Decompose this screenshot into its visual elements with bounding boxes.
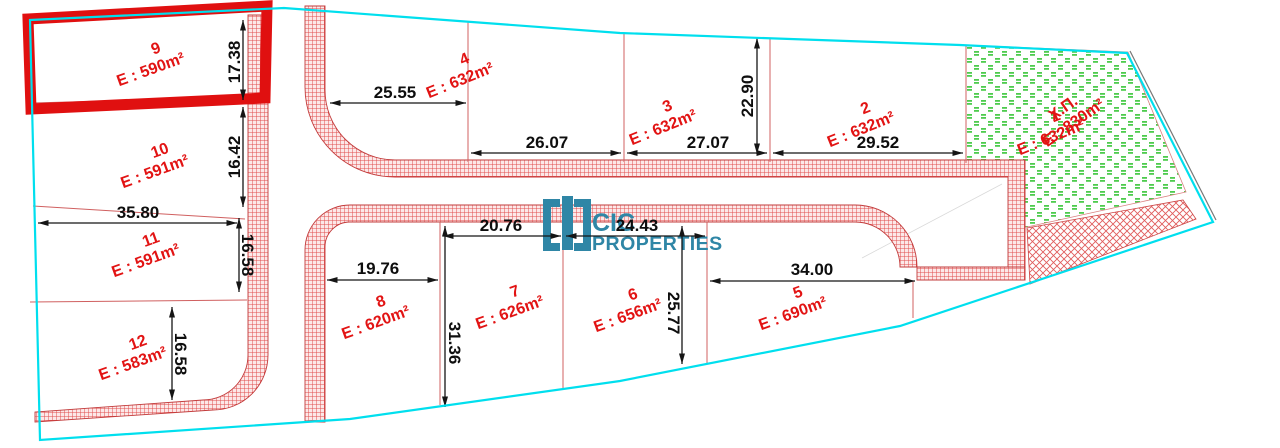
svg-text:20.76: 20.76 bbox=[480, 216, 523, 235]
svg-text:27.07: 27.07 bbox=[687, 133, 730, 152]
svg-text:16.58: 16.58 bbox=[171, 333, 190, 376]
land-plan-screenshot: CIC PROPERTIES 17.38 16.42 35.80 16.58 1… bbox=[0, 0, 1280, 448]
svg-text:25.55: 25.55 bbox=[374, 83, 417, 102]
svg-text:26.07: 26.07 bbox=[526, 133, 569, 152]
svg-text:35.80: 35.80 bbox=[117, 203, 160, 222]
svg-text:17.38: 17.38 bbox=[225, 41, 244, 84]
svg-text:22.90: 22.90 bbox=[738, 75, 757, 118]
svg-text:31.36: 31.36 bbox=[445, 322, 464, 365]
svg-text:19.76: 19.76 bbox=[357, 259, 400, 278]
svg-text:25.77: 25.77 bbox=[664, 292, 683, 335]
logo-brackets-icon bbox=[543, 196, 591, 251]
svg-text:34.00: 34.00 bbox=[791, 260, 834, 279]
subdivision-plan-drawing: CIC PROPERTIES 17.38 16.42 35.80 16.58 1… bbox=[0, 0, 1280, 448]
svg-text:16.58: 16.58 bbox=[238, 234, 257, 277]
svg-text:16.42: 16.42 bbox=[225, 136, 244, 179]
svg-text:24.43: 24.43 bbox=[616, 216, 659, 235]
